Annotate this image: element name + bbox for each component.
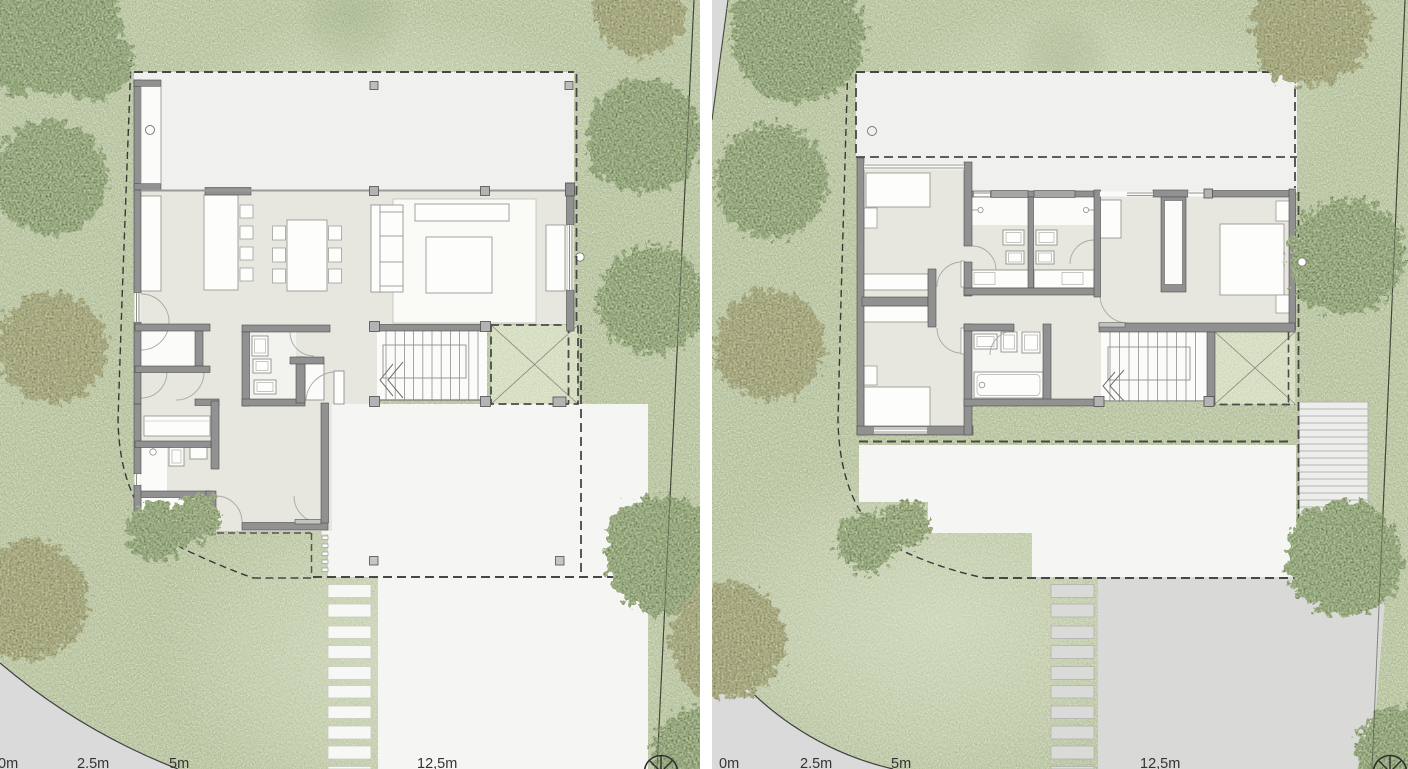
svg-text:0m: 0m (719, 756, 739, 769)
svg-text:2.5m: 2.5m (800, 756, 832, 769)
svg-text:5m: 5m (169, 756, 189, 769)
svg-text:0m: 0m (0, 756, 18, 769)
svg-text:12,5m: 12,5m (1140, 756, 1180, 769)
svg-text:12,5m: 12,5m (417, 756, 457, 769)
svg-text:2.5m: 2.5m (77, 756, 109, 769)
svg-text:5m: 5m (891, 756, 911, 769)
